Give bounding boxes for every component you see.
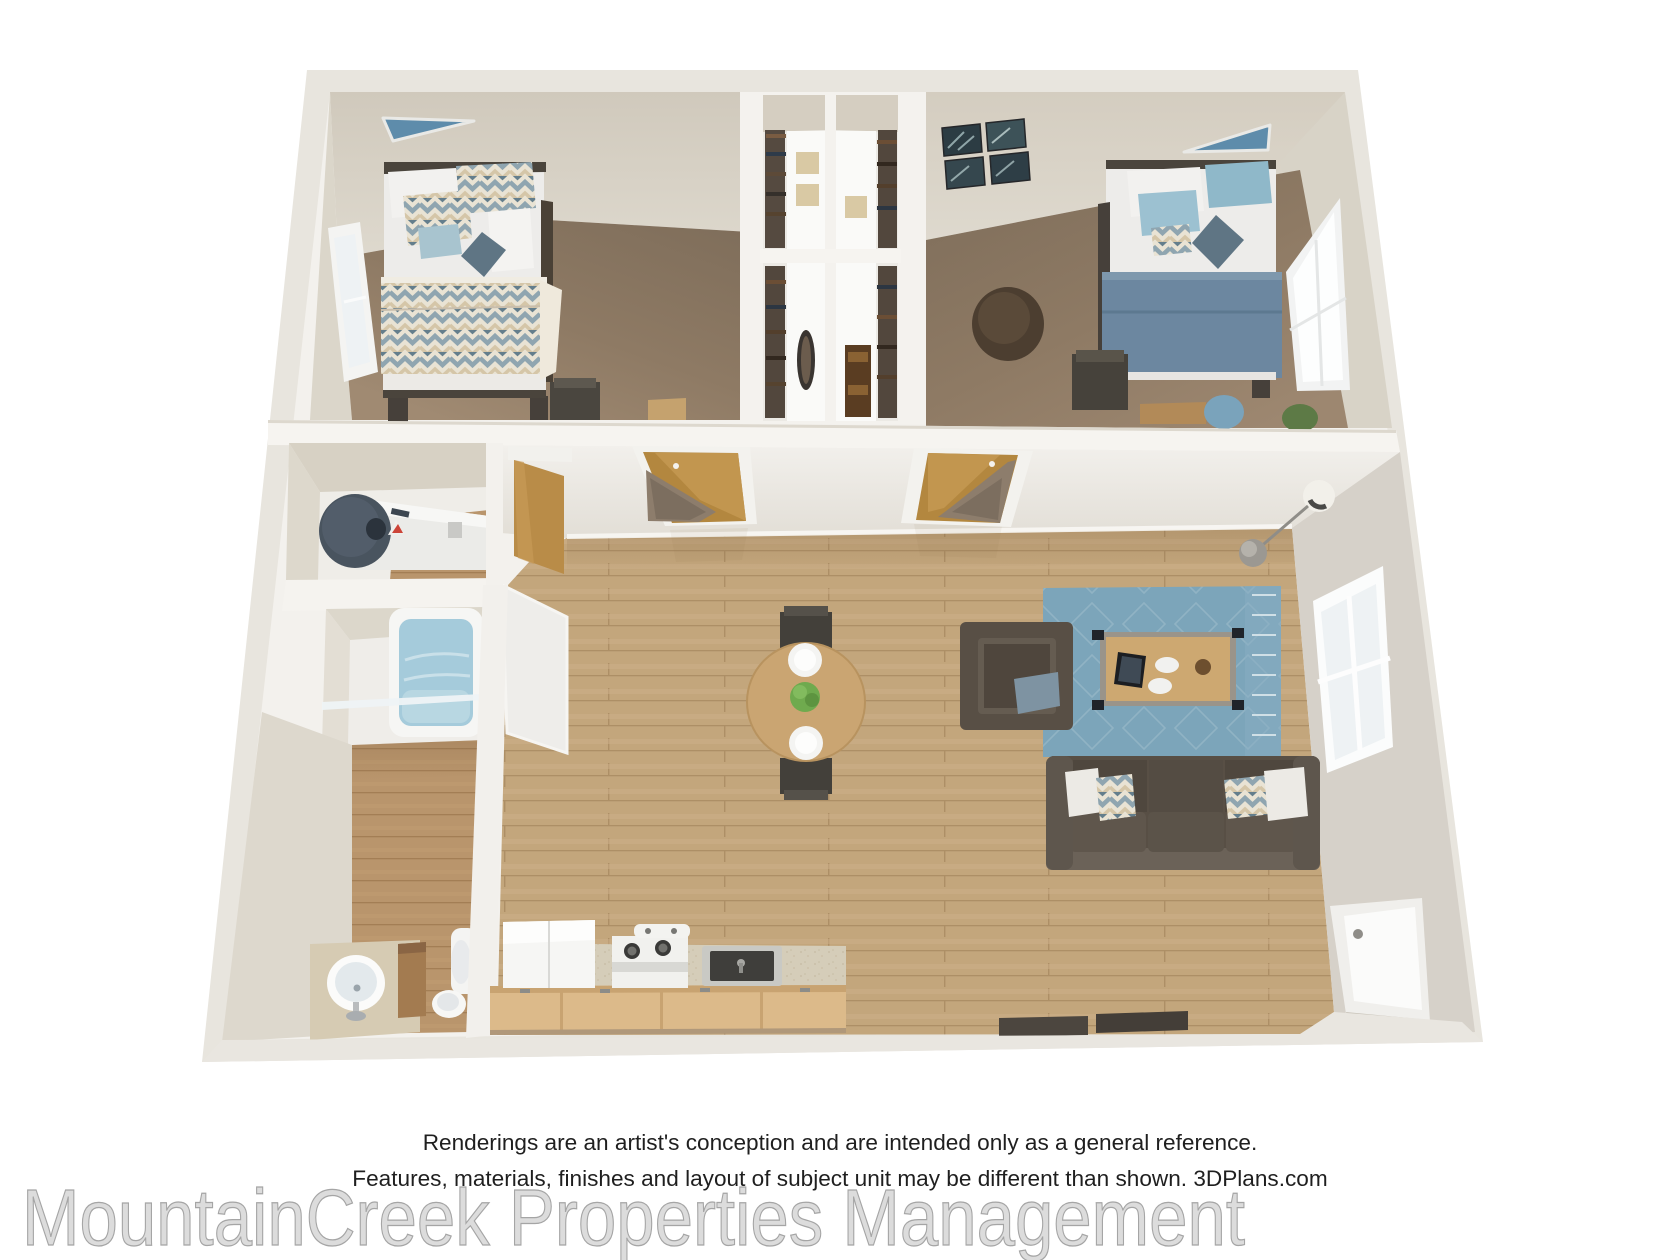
svg-text:MountainCreek Properties Manag: MountainCreek Properties Management [22,1173,1245,1260]
svg-text:Renderings are an artist's con: Renderings are an artist's conception an… [423,1130,1258,1155]
